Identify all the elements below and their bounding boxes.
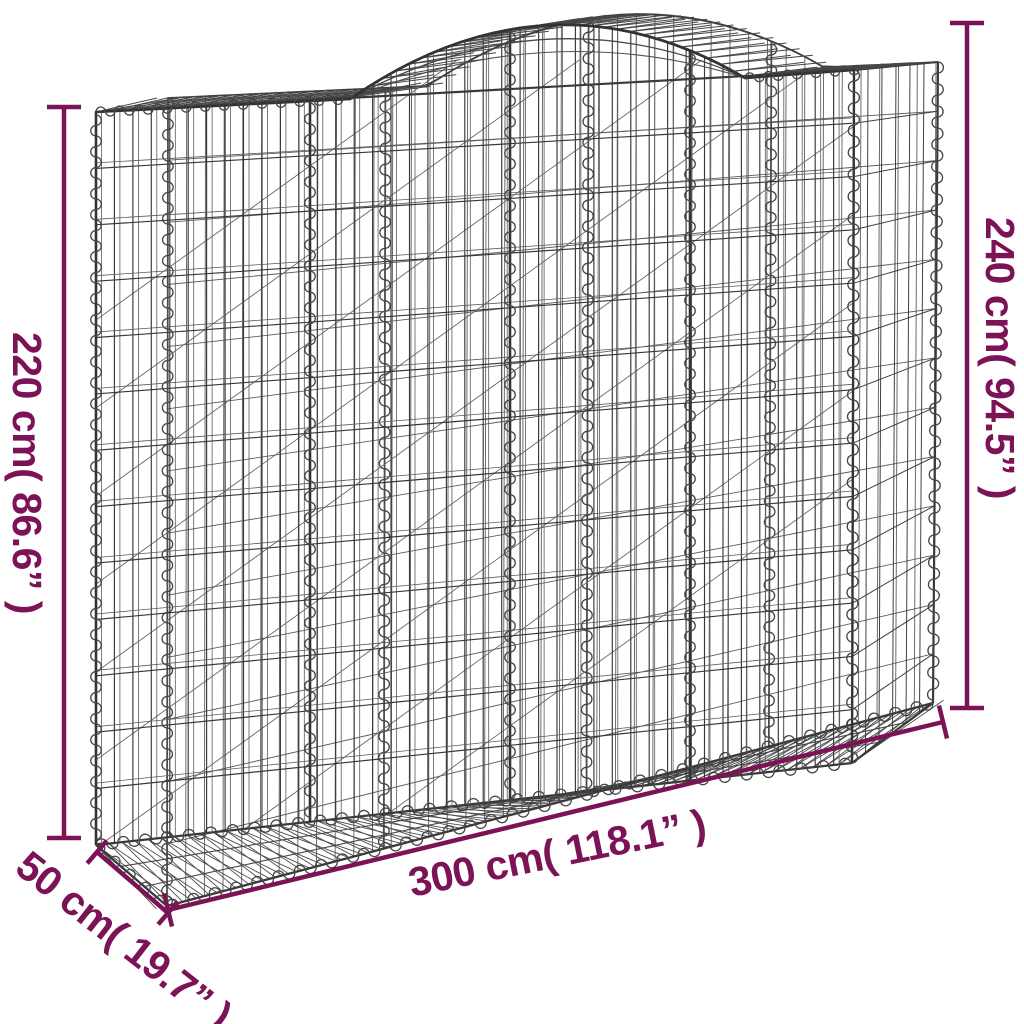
product-dimension-diagram: 220 cm( 86.6” ) 240 cm( 94.5” ) 300 cm( …: [0, 0, 1024, 1024]
height-left-dimension-label: 220 cm( 86.6” ): [4, 332, 50, 614]
height-right-dimension: 240 cm( 94.5” ): [950, 23, 1023, 708]
diagram-canvas: 220 cm( 86.6” ) 240 cm( 94.5” ) 300 cm( …: [0, 0, 1024, 1024]
height-right-dimension-label: 240 cm( 94.5” ): [977, 217, 1023, 499]
height-left-dimension: 220 cm( 86.6” ): [4, 107, 81, 838]
width-bottom-dimension-line: [168, 722, 943, 910]
